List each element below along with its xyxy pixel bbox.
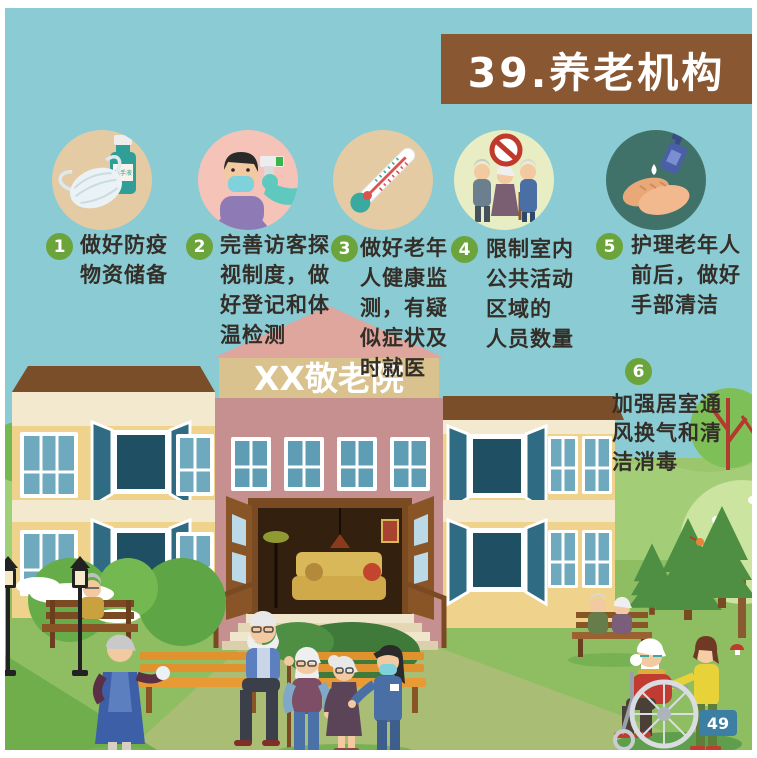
open-window [448,520,546,604]
window [390,437,430,491]
tip-2-number: 2 [186,233,213,260]
tip-6-number: 6 [625,358,652,385]
open-window [448,426,546,510]
window [231,437,271,491]
window [548,530,578,588]
thermometer-gun [260,156,298,205]
window [582,530,612,588]
bird [696,538,704,546]
page-title: 39.养老机构 [468,39,726,99]
window [337,437,377,491]
name-badge [390,684,399,691]
poster: XX敬老院 [0,0,757,758]
visitor-temperature-check-icon [198,130,298,230]
tip-4-icon-circle [454,130,554,230]
pump-bottle [658,134,691,175]
open-window [92,422,190,506]
tip-4-number: 4 [451,236,478,263]
tip-3-icon-circle [333,130,433,230]
window [582,436,612,494]
picture-frame [382,520,398,542]
tip-5-number: 5 [596,233,623,260]
tip-1-text: 做好防疫 物资储备 [80,230,168,290]
drop [652,164,657,175]
tip-3-number: 3 [331,235,358,262]
cup [156,666,170,680]
title-banner: 39.养老机构 [441,34,752,104]
window [548,436,578,494]
mask-and-sanitizer-icon: 洗手液 [52,130,152,230]
tip-2-icon-circle [198,130,298,230]
hand-hygiene-icon [606,130,706,230]
window [20,432,78,498]
tip-2-text: 完善访客探 视制度，做 好登记和体 温检测 [220,230,330,350]
window [284,437,324,491]
tip-4-text: 限制室内 公共活动 区域的 人员数量 [486,234,574,354]
hands [619,172,692,220]
page-number-badge: 49 [699,710,737,736]
entrance [226,496,434,620]
elderly-figures [473,159,537,222]
window [176,434,214,496]
floor-lamp [263,531,289,543]
face-mask [379,664,397,675]
tip-1-icon-circle: 洗手液 [52,130,152,230]
tip-3-text: 做好老年 人健康监 测，有疑 似症状及 时就医 [360,233,448,383]
tip-5-text: 护理老年人 前后，做好 手部清洁 [631,230,741,320]
limit-gathering-icon [454,130,554,230]
pillow [363,563,381,581]
elderly-couple-with-nurse [275,645,415,750]
tip-5-icon-circle [606,130,706,230]
thermometer-icon [333,130,433,230]
tip-1-number: 1 [46,233,73,260]
prohibition-sign [492,136,520,164]
tip-6-text: 加强居室通 风换气和清 洁消毒 [612,390,722,477]
